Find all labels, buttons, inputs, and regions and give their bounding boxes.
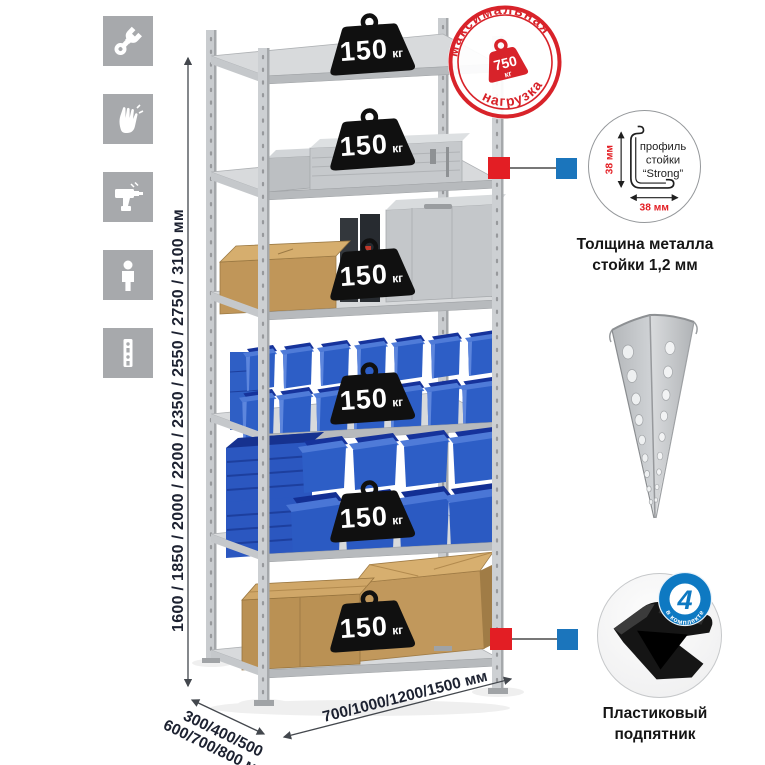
profile-dim-horizontal: 38 мм — [640, 202, 669, 213]
legend-tile-person — [103, 250, 153, 300]
shelf-load-badge-6: 150кг — [321, 587, 421, 658]
legend-tile-post — [103, 328, 153, 378]
blue-marker-bottom — [557, 629, 578, 650]
load-value: 150 — [339, 259, 389, 292]
blue-marker-top — [556, 158, 577, 179]
foot-caption: Пластиковый подпятник — [580, 703, 730, 745]
load-unit: кг — [392, 141, 404, 156]
load-unit: кг — [392, 395, 404, 410]
profile-dim-vertical: 38 мм — [604, 145, 615, 174]
shelf-load-badge-4: 150кг — [321, 359, 421, 430]
badge-quantity: 4 — [676, 585, 692, 615]
wrench-icon — [111, 24, 145, 58]
red-marker-bottom — [490, 628, 512, 650]
foot-caption-line1: Пластиковый — [580, 703, 730, 724]
person-icon — [111, 258, 145, 292]
max-load-stamp: максимальная нагрузка 750 кг — [444, 1, 566, 123]
profile-label-line2: стойки — [646, 155, 680, 167]
included-quantity-badge: 4 в комплекте — [657, 571, 713, 627]
load-value: 150 — [339, 34, 389, 67]
load-value: 150 — [339, 611, 389, 644]
profile-label-line1: профиль — [640, 141, 686, 153]
shelf-load-badge-3: 150кг — [321, 235, 421, 306]
load-value: 150 — [339, 501, 389, 534]
profile-caption-line2: стойки 1,2 мм — [570, 255, 720, 276]
load-unit: кг — [392, 46, 404, 61]
drill-icon — [111, 180, 145, 214]
profile-caption-line1: Толщина металла — [570, 234, 720, 255]
height-dimension-label: 1600 / 1850 / 2000 / 2200 / 2350 / 2550 … — [170, 209, 187, 632]
load-unit: кг — [392, 271, 404, 286]
load-value: 150 — [339, 383, 389, 416]
post-profile-drawing: 38 мм 38 мм профиль стойки “Strong” — [589, 111, 700, 222]
load-value: 150 — [339, 129, 389, 162]
load-unit: кг — [392, 623, 404, 638]
profile-caption: Толщина металла стойки 1,2 мм — [570, 234, 720, 276]
post-profile-callout: 38 мм 38 мм профиль стойки “Strong” — [588, 110, 701, 223]
profile-label-line3: “Strong” — [643, 168, 684, 180]
legend-tile-gloves — [103, 94, 153, 144]
load-unit: кг — [392, 513, 404, 528]
gloves-icon — [111, 102, 145, 136]
product-infographic: 1600 / 1850 / 2000 / 2200 / 2350 / 2550 … — [0, 0, 765, 765]
shelf-load-badge-2: 150кг — [321, 105, 421, 176]
shelf-load-badge-1: 150кг — [321, 10, 421, 81]
angle-post-image — [592, 300, 732, 535]
legend-tile-assembly — [103, 16, 153, 66]
red-marker-top — [488, 157, 510, 179]
foot-caption-line2: подпятник — [580, 724, 730, 745]
legend-tile-drill — [103, 172, 153, 222]
rack-post-icon — [111, 336, 145, 370]
shelf-load-badge-5: 150кг — [321, 477, 421, 548]
width-dimension-label: 700/1000/1200/1500 мм — [321, 668, 489, 726]
